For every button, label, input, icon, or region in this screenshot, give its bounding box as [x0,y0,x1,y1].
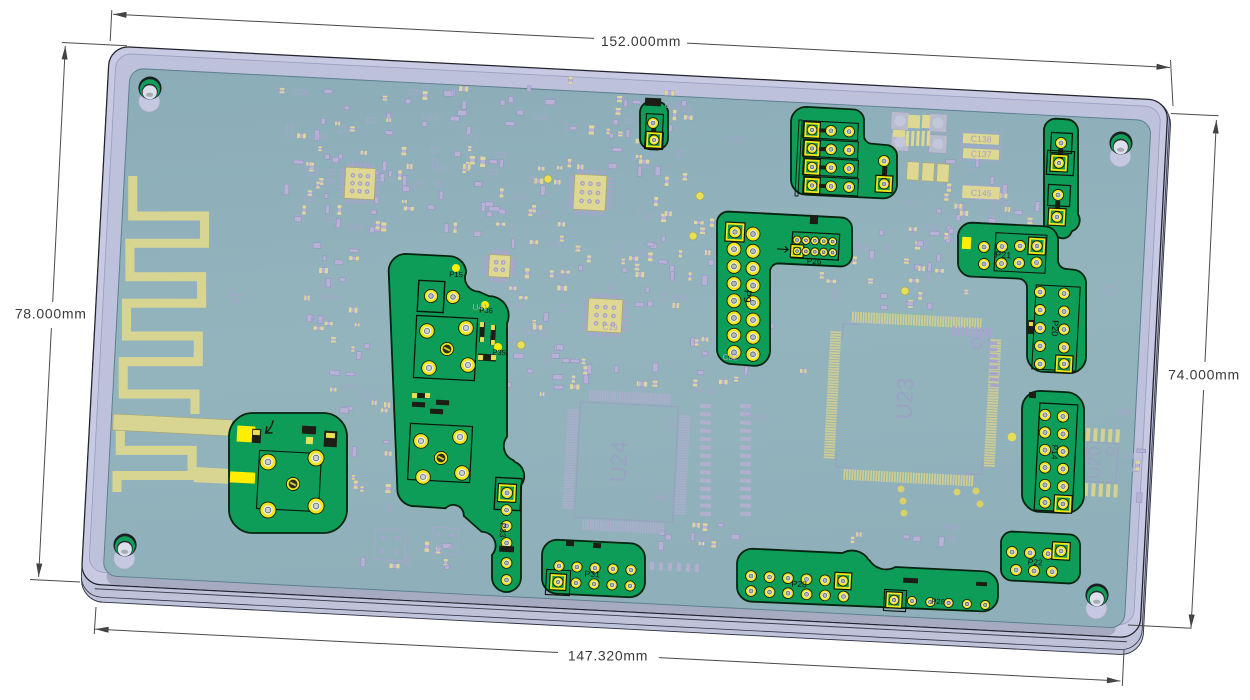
svg-text:R77: R77 [552,272,568,283]
svg-text:R88: R88 [1117,407,1133,418]
svg-text:R18: R18 [992,197,1008,208]
svg-text:R45: R45 [672,292,688,303]
svg-text:U21: U21 [407,87,423,98]
svg-text:P20: P20 [1050,320,1061,336]
svg-text:C19: C19 [602,322,618,333]
svg-text:P14: P14 [1050,445,1061,461]
svg-text:P31: P31 [584,569,600,580]
svg-text:P28: P28 [791,579,807,590]
svg-text:U41: U41 [472,302,488,313]
svg-text:74.000mm: 74.000mm [1168,367,1240,383]
svg-text:C55: C55 [922,222,938,233]
svg-text:R12: R12 [462,132,478,143]
svg-text:78.000mm: 78.000mm [15,306,87,322]
svg-text:U24: U24 [604,440,632,483]
svg-text:P21: P21 [995,250,1012,261]
svg-text:P22: P22 [1027,557,1043,568]
svg-text:C44: C44 [347,222,363,233]
svg-text:P15: P15 [449,270,463,280]
svg-text:C145: C145 [971,188,992,199]
svg-text:C138: C138 [971,134,992,145]
svg-text:P26: P26 [931,597,945,607]
svg-text:147.320mm: 147.320mm [568,648,648,664]
svg-text:U20: U20 [664,100,680,111]
svg-text:P26: P26 [806,256,822,267]
svg-text:U15: U15 [902,197,918,208]
svg-text:C31: C31 [512,192,528,203]
svg-text:C77: C77 [342,382,358,393]
svg-text:U20: U20 [1083,446,1105,480]
svg-text:P33: P33 [498,523,509,539]
svg-text:U26: U26 [728,134,744,145]
svg-text:U23: U23 [890,377,918,420]
svg-text:C13: C13 [692,532,708,543]
svg-text:J2: J2 [228,290,245,306]
svg-text:R64: R64 [652,492,668,503]
svg-text:C137: C137 [970,149,991,160]
svg-text:U19: U19 [632,247,648,258]
svg-text:R24: R24 [322,292,338,303]
svg-text:U33: U33 [532,112,548,123]
svg-text:U38: U38 [292,87,308,98]
svg-text:U13: U13 [422,112,438,123]
svg-text:R09: R09 [942,522,958,533]
svg-text:152.000mm: 152.000mm [601,33,681,49]
svg-text:U22: U22 [752,412,768,423]
svg-text:C82: C82 [722,352,738,363]
svg-text:R52: R52 [312,132,328,143]
svg-text:P9: P9 [741,290,753,303]
svg-text:R31: R31 [852,242,868,253]
